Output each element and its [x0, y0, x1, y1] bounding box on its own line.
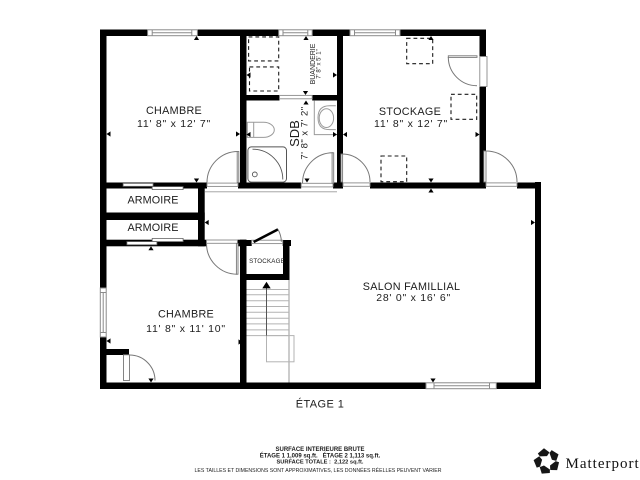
svg-text:LES TAILLES ET DIMENSIONS SONT: LES TAILLES ET DIMENSIONS SONT APPROXIMA…: [195, 467, 442, 474]
svg-text:7' 8" x 5' 1": 7' 8" x 5' 1": [317, 49, 323, 79]
svg-text:ARMOIRE: ARMOIRE: [127, 195, 178, 207]
svg-text:ÉTAGE 1 1,009 sq.ft. ÉTAGE 2: ÉTAGE 1 1,009 sq.ft. ÉTAGE 2 1,113 sq.ft…: [260, 452, 381, 460]
svg-text:7' 8" x 7' 2": 7' 8" x 7' 2": [300, 106, 311, 159]
svg-text:ARMOIRE: ARMOIRE: [127, 222, 178, 234]
svg-text:CHAMBRE: CHAMBRE: [158, 308, 214, 320]
svg-text:Matterport: Matterport: [566, 456, 640, 472]
svg-text:11' 8" x 12' 7": 11' 8" x 12' 7": [137, 118, 211, 130]
svg-text:28' 0" x 16' 6": 28' 0" x 16' 6": [376, 292, 451, 304]
svg-text:SURFACE TOTALE : 2,122 sq.ft.: SURFACE TOTALE : 2,122 sq.ft.: [276, 460, 363, 466]
svg-text:STOCKAGE: STOCKAGE: [379, 106, 441, 118]
svg-text:CHAMBRE: CHAMBRE: [146, 105, 202, 117]
svg-text:SURFACE INTERIEURE BRUTE: SURFACE INTERIEURE BRUTE: [275, 447, 364, 453]
svg-text:ÉTAGE 1: ÉTAGE 1: [296, 398, 344, 411]
svg-text:STOCKAGE: STOCKAGE: [249, 258, 285, 265]
svg-text:11' 8" x 12' 7": 11' 8" x 12' 7": [374, 118, 448, 130]
svg-text:11' 8" x 11' 10": 11' 8" x 11' 10": [146, 323, 226, 335]
